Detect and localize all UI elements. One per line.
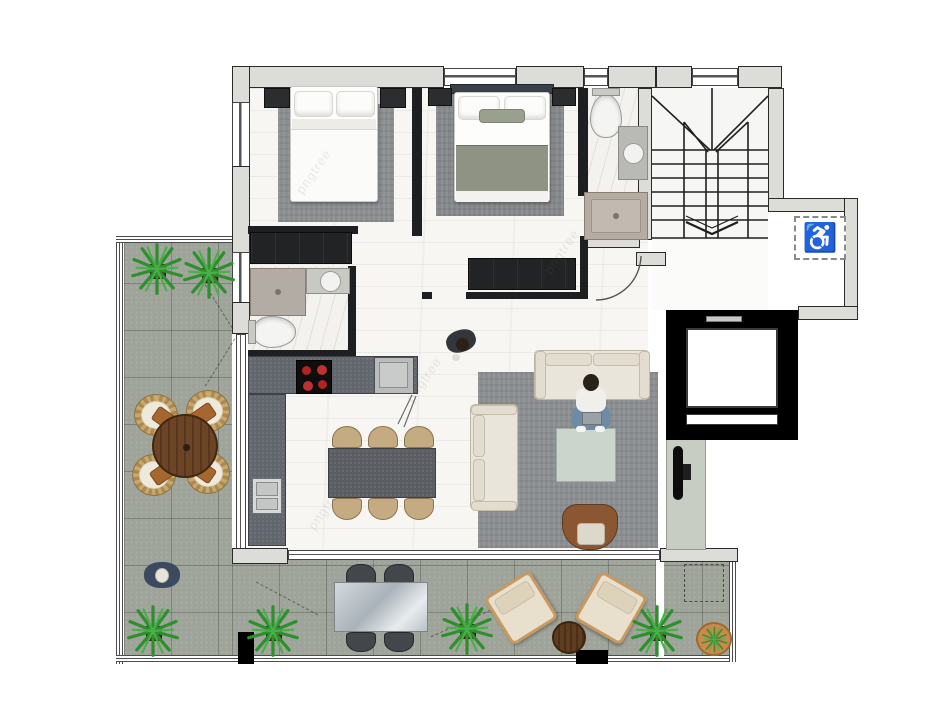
bathroom2-vanity (306, 268, 350, 294)
plant-icon (130, 242, 184, 296)
tv-wall (666, 438, 706, 550)
bed-sheet-band (292, 119, 376, 129)
dining-chair (368, 426, 398, 448)
wall-nook-right (844, 198, 858, 320)
person-head (583, 374, 599, 391)
burner (302, 366, 311, 375)
wall-bedroom2-corner (580, 236, 588, 298)
fridge-inner (379, 362, 408, 388)
person-walking (444, 328, 480, 362)
plant-icon (182, 246, 236, 300)
window-stairwell (692, 68, 738, 86)
sofa-back-cushion (473, 459, 485, 501)
kitchen-counter-side (248, 394, 286, 546)
elevator-door-sill (706, 316, 742, 322)
plant-icon (701, 626, 728, 653)
sofa-armrest (471, 501, 517, 511)
wall-bedroom2-bottom (466, 292, 588, 299)
stairwell-floor (652, 88, 768, 240)
glass-wall-left (236, 334, 246, 550)
table-center (183, 444, 190, 451)
wall-entry-corner (636, 252, 666, 266)
person-foot (452, 354, 460, 361)
wall-bedroom2-bath (578, 88, 588, 196)
wall-left-2 (232, 166, 250, 254)
toilet-tank (592, 88, 620, 96)
sink-basin (320, 271, 341, 292)
shower-tray (584, 192, 648, 240)
pillow (336, 91, 375, 117)
accessible-icon: ♿ (803, 224, 838, 252)
elevator-shaft (666, 310, 798, 440)
sofa-armrest (535, 351, 546, 399)
sink-bowl (256, 498, 278, 510)
person-sitting (568, 372, 612, 432)
sliding-glass-door (288, 550, 660, 560)
outdoor-chair (384, 564, 414, 584)
sofa-armrest (639, 351, 650, 399)
round-wood-table (152, 414, 218, 478)
plant-icon (440, 602, 494, 656)
plant-icon (246, 604, 300, 658)
terrace-railing-left (116, 236, 123, 664)
sofa-back-cushion (593, 353, 640, 366)
kitchen-sink (252, 478, 282, 514)
stove (296, 360, 332, 394)
window-top-2 (584, 68, 608, 86)
elevator-pit-bar (686, 414, 778, 425)
outdoor-chair (384, 632, 414, 652)
armchair (562, 504, 618, 550)
shower-drain (275, 289, 281, 295)
threshold-marker (576, 650, 608, 664)
bedroom1-nightstand-right (380, 88, 406, 108)
person-foot (576, 426, 586, 432)
accent-pillow (479, 109, 525, 123)
person-head (155, 568, 169, 583)
dining-chair (332, 426, 362, 448)
wall-bedroom2-bottom-stub (422, 292, 432, 299)
wall-left-1 (232, 66, 250, 104)
toilet-tank-2 (248, 320, 256, 344)
dining-chair (404, 426, 434, 448)
burner (318, 380, 327, 389)
bed-foot-band (456, 191, 548, 202)
wall-bottom-left-block (232, 548, 288, 564)
window-left-1 (232, 102, 250, 168)
sink-bowl (256, 482, 278, 496)
tv (673, 446, 683, 500)
person-terrace (142, 558, 184, 594)
shower-tray-2 (250, 268, 306, 316)
plant-icon (126, 604, 180, 658)
bedroom1-nightstand-left (264, 88, 290, 108)
outdoor-chair (346, 632, 376, 652)
apartment-floor-plan: ♿ (0, 0, 928, 719)
laptop (582, 412, 602, 425)
plant-icon (630, 604, 684, 658)
person-foot (595, 426, 605, 432)
wall-stair-right (768, 88, 784, 200)
wall-top-3 (608, 66, 656, 88)
armchair-pillow (577, 523, 605, 545)
wall-top-stair-1 (656, 66, 692, 88)
sofa-armrest (471, 405, 517, 415)
person-torso (576, 388, 606, 412)
sofa-back-cushion (545, 353, 592, 366)
bedroom2-nightstand-right (552, 88, 576, 106)
pillow (294, 91, 333, 117)
sofa-side (470, 404, 518, 510)
side-table (552, 621, 586, 654)
shower-drain (613, 213, 619, 219)
wall-top-stair-2 (738, 66, 782, 88)
paving-dashed-square (684, 564, 724, 602)
wall-bottom-right (660, 548, 738, 562)
bathroom1-vanity (618, 126, 648, 180)
wall-nook-bottom (798, 306, 858, 320)
wall-top-1 (232, 66, 444, 88)
burner (317, 365, 327, 375)
bed-blanket (456, 145, 548, 191)
elevator-car (686, 328, 778, 408)
wall-bedroom-divider (412, 88, 422, 236)
accessible-area: ♿ (794, 216, 846, 260)
bedroom2-nightstand-left (428, 88, 452, 106)
person-head (456, 338, 469, 351)
tv-mount (683, 464, 691, 480)
sofa-back-cushion (473, 415, 485, 457)
landing-floor (652, 240, 768, 310)
glass-table (334, 582, 428, 632)
burner (303, 381, 313, 391)
coffee-table (556, 428, 616, 482)
sink-basin (623, 143, 644, 164)
bedroom2-bed (454, 92, 550, 202)
bedroom1-wardrobe (250, 232, 352, 264)
outdoor-chair (346, 564, 376, 584)
